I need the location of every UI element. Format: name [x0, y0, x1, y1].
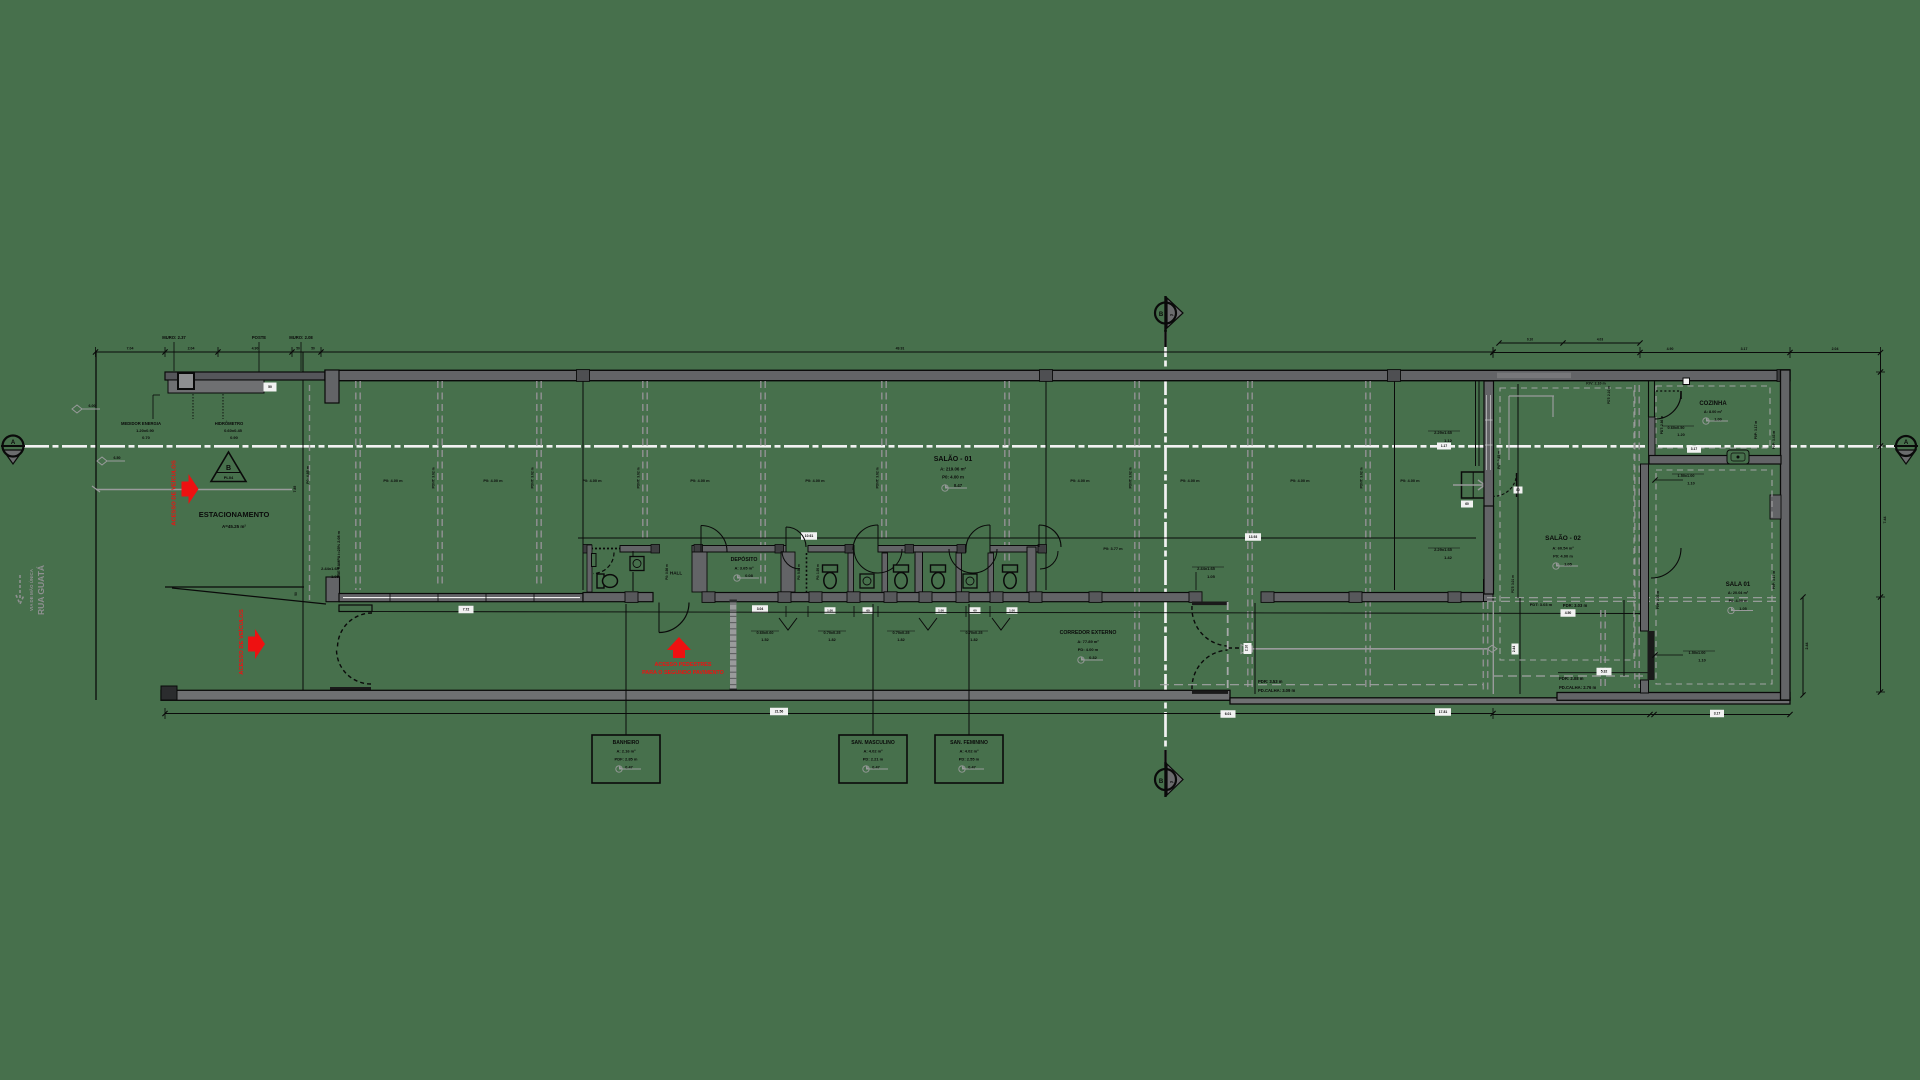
- svg-text:P0: 4.00 m: P0: 4.00 m: [942, 475, 964, 480]
- svg-text:PDR: 2.08 m: PDR: 2.08 m: [1559, 676, 1584, 681]
- svg-text:17.81: 17.81: [1439, 710, 1448, 714]
- svg-text:6.00: 6.00: [89, 404, 96, 408]
- svg-text:0.10: 0.10: [1527, 338, 1533, 342]
- svg-text:1.82: 1.82: [970, 638, 977, 642]
- svg-text:PDT: 3.01 m: PDT: 3.01 m: [1511, 575, 1515, 593]
- svg-text:13.93: 13.93: [1249, 535, 1258, 539]
- svg-text:50: 50: [268, 385, 272, 389]
- svg-text:1.52: 1.52: [761, 638, 768, 642]
- svg-text:6.01: 6.01: [1225, 712, 1232, 716]
- svg-text:1.50x1.00: 1.50x1.00: [1689, 651, 1706, 655]
- svg-text:2.44: 2.44: [1512, 646, 1516, 652]
- svg-text:PARA O SEGUNDO PAVIMENTO: PARA O SEGUNDO PAVIMENTO: [642, 670, 724, 676]
- svg-text:P0P: 3.17 m: P0P: 3.17 m: [1772, 571, 1776, 590]
- svg-text:0.70x0.25: 0.70x0.25: [893, 631, 910, 635]
- svg-text:0.32: 0.32: [1089, 655, 1098, 660]
- svg-text:0.70: 0.70: [142, 435, 151, 440]
- svg-text:B: B: [226, 465, 231, 472]
- svg-text:0.60x0.45: 0.60x0.45: [224, 428, 243, 433]
- svg-text:50: 50: [311, 347, 315, 351]
- svg-text:1.05: 1.05: [1207, 574, 1216, 579]
- svg-text:7.85: 7.85: [293, 486, 297, 493]
- svg-text:7.72: 7.72: [463, 608, 470, 612]
- svg-text:0.60x0.60: 0.60x0.60: [757, 631, 774, 635]
- svg-text:SAN. FEMININO: SAN. FEMININO: [950, 740, 988, 746]
- svg-text:SALÃO - 02: SALÃO - 02: [1545, 533, 1581, 542]
- svg-text:B: B: [1159, 312, 1164, 318]
- svg-text:PL: PL: [1170, 780, 1174, 784]
- svg-text:HALL: HALL: [670, 571, 682, 576]
- svg-text:P0: 4.00 m: P0: 4.00 m: [1290, 478, 1310, 483]
- svg-text:3.17: 3.17: [1714, 712, 1721, 716]
- svg-text:A: 4.02 m²: A: 4.02 m²: [959, 749, 979, 754]
- svg-text:SAN. MASCULINO: SAN. MASCULINO: [851, 740, 895, 746]
- svg-text:PONT: 3.62 m: PONT: 3.62 m: [876, 467, 880, 488]
- svg-text:P.IV: 2.10 m: P.IV: 2.10 m: [1586, 382, 1606, 386]
- svg-text:PD.CALHA: 2.76 m: PD.CALHA: 2.76 m: [1559, 685, 1597, 690]
- svg-text:P0: 1.95 m: P0: 1.95 m: [816, 564, 820, 580]
- svg-text:P0: 4.00 m: P0: 4.00 m: [1729, 599, 1748, 603]
- svg-text:1.20: 1.20: [1677, 433, 1684, 437]
- svg-text:60: 60: [973, 609, 977, 613]
- svg-text:49.91: 49.91: [896, 347, 905, 351]
- svg-text:60: 60: [1465, 502, 1469, 506]
- svg-text:CORREDOR EXTERNO: CORREDOR EXTERNO: [1060, 630, 1117, 636]
- svg-text:2.10: 2.10: [1245, 645, 1249, 651]
- svg-text:P0: 0.98 m: P0: 0.98 m: [665, 564, 669, 580]
- svg-text:RUA GUATÁ: RUA GUATÁ: [36, 565, 46, 615]
- svg-text:A: 77.89 m²: A: 77.89 m²: [1077, 639, 1099, 644]
- svg-text:0.70x0.25: 0.70x0.25: [966, 631, 983, 635]
- svg-text:1.42: 1.42: [1444, 555, 1453, 560]
- svg-text:3.17: 3.17: [1741, 347, 1748, 351]
- svg-text:3.04: 3.04: [757, 607, 764, 611]
- svg-text:2.04: 2.04: [1832, 347, 1839, 351]
- svg-text:SALA 01: SALA 01: [1726, 582, 1751, 588]
- svg-text:DEPÓSITO: DEPÓSITO: [731, 555, 758, 563]
- svg-text:A: 3.65 m²: A: 3.65 m²: [734, 566, 754, 571]
- svg-text:PL04: PL04: [224, 475, 234, 480]
- svg-text:PD: 2.55 m: PD: 2.55 m: [959, 757, 980, 762]
- svg-text:POSTE: POSTE: [252, 335, 266, 340]
- svg-text:PDR: 3.03 m: PDR: 3.03 m: [1563, 603, 1588, 608]
- svg-text:4.50: 4.50: [1565, 611, 1572, 615]
- svg-text:A: 8.00 m²: A: 8.00 m²: [1704, 410, 1723, 414]
- svg-text:P0: 4.00 m: P0: 4.00 m: [1180, 478, 1200, 483]
- svg-text:SALÃO - 01: SALÃO - 01: [934, 454, 973, 463]
- svg-text:1.50x1.00: 1.50x1.00: [1678, 474, 1695, 478]
- svg-text:PD: 2.21 m: PD: 2.21 m: [863, 757, 884, 762]
- svg-text:P0: 4.00 m: P0: 4.00 m: [690, 478, 710, 483]
- svg-text:1.82: 1.82: [897, 638, 904, 642]
- svg-text:MEDIDOR ENERGIA: MEDIDOR ENERGIA: [121, 421, 161, 426]
- svg-text:PONT: 3.62 m: PONT: 3.62 m: [432, 467, 436, 488]
- svg-text:PD.CALHA: 3.09 m: PD.CALHA: 3.09 m: [1258, 688, 1296, 693]
- svg-text:6.50: 6.50: [114, 456, 121, 460]
- svg-text:7.44: 7.44: [1883, 517, 1887, 524]
- svg-text:A: 20.04 m²: A: 20.04 m²: [1728, 591, 1749, 595]
- svg-text:PDT: 2.86 m: PDT: 2.86 m: [1660, 416, 1664, 435]
- svg-text:4.03: 4.03: [1597, 338, 1603, 342]
- svg-text:1.17: 1.17: [1441, 444, 1447, 448]
- svg-text:50: 50: [296, 347, 300, 351]
- svg-text:ESTACIONAMENTO: ESTACIONAMENTO: [199, 510, 270, 519]
- svg-text:PDF: 2.85 m: PDF: 2.85 m: [615, 757, 638, 762]
- svg-text:MURO: 2.08: MURO: 2.08: [289, 335, 313, 340]
- svg-text:A: A: [11, 440, 16, 446]
- svg-text:10.61: 10.61: [805, 534, 814, 538]
- svg-text:P0P: 2.03 m: P0P: 2.03 m: [1656, 591, 1660, 610]
- svg-text:2.44: 2.44: [1805, 643, 1809, 650]
- svg-text:A: 4.02 m²: A: 4.02 m²: [863, 749, 883, 754]
- svg-text:5.32: 5.32: [1601, 670, 1608, 674]
- svg-text:50: 50: [294, 592, 298, 596]
- svg-text:1.05: 1.05: [331, 574, 340, 579]
- svg-text:P0P: 3.43 m: P0P: 3.43 m: [1772, 431, 1776, 450]
- svg-text:2.44x1.65: 2.44x1.65: [321, 566, 340, 571]
- svg-text:3.17: 3.17: [1691, 447, 1698, 451]
- svg-text:ACESSO PEDESTRES: ACESSO PEDESTRES: [655, 662, 712, 668]
- svg-text:A: 60.54 m²: A: 60.54 m²: [1552, 546, 1574, 551]
- svg-text:PDT: 2.10 m: PDT: 2.10 m: [1607, 386, 1611, 404]
- svg-text:PONT: 3.62 m: PONT: 3.62 m: [1360, 467, 1364, 488]
- svg-text:BANHEIRO: BANHEIRO: [613, 740, 640, 746]
- svg-text:P0: 4.00 m: P0: 4.00 m: [1400, 478, 1420, 483]
- svg-text:PONT: 3.62 m: PONT: 3.62 m: [637, 467, 641, 488]
- svg-text:P0: 4.00 m: P0: 4.00 m: [483, 478, 503, 483]
- svg-text:0.08: 0.08: [745, 573, 754, 578]
- svg-text:1.12: 1.12: [1444, 438, 1453, 443]
- svg-text:P0: 3.77 m: P0: 3.77 m: [1103, 546, 1123, 551]
- svg-text:A: 2.16 m²: A: 2.16 m²: [616, 749, 636, 754]
- svg-text:ACESSO DE VEÍCULOS: ACESSO DE VEÍCULOS: [170, 460, 178, 526]
- svg-text:1.10: 1.10: [1698, 659, 1705, 663]
- svg-text:PL: PL: [1170, 313, 1174, 317]
- svg-text:0.47: 0.47: [954, 483, 963, 488]
- svg-text:P0: 4.00 m: P0: 4.00 m: [1070, 478, 1090, 483]
- svg-text:B: B: [1159, 779, 1164, 785]
- svg-text:4.90: 4.90: [1667, 347, 1674, 351]
- svg-text:P0: 4.00 m: P0: 4.00 m: [582, 478, 602, 483]
- svg-text:HIDRÔMETRO: HIDRÔMETRO: [215, 421, 244, 426]
- svg-text:1.82: 1.82: [828, 638, 835, 642]
- svg-text:0.70x0.25: 0.70x0.25: [824, 631, 841, 635]
- svg-text:P0: 4.00 m: P0: 4.00 m: [383, 478, 403, 483]
- svg-text:1.20x0.90: 1.20x0.90: [136, 428, 155, 433]
- svg-text:1.00: 1.00: [1009, 609, 1015, 613]
- svg-text:P0: 4.00 m: P0: 4.00 m: [1553, 554, 1573, 559]
- svg-text:ACESSO DE VEÍCULOS: ACESSO DE VEÍCULOS: [237, 609, 245, 675]
- svg-text:4.90: 4.90: [252, 347, 259, 351]
- svg-text:P0P: 3.17 m: P0P: 3.17 m: [1754, 421, 1758, 440]
- svg-text:PONT: 3.62 m: PONT: 3.62 m: [1129, 467, 1133, 488]
- svg-text:A: A: [1904, 440, 1909, 446]
- svg-text:VIA DE MÃO ÚNICA: VIA DE MÃO ÚNICA: [28, 568, 34, 611]
- svg-text:P0: 4.00 m: P0: 4.00 m: [805, 478, 825, 483]
- svg-text:1.10: 1.10: [1687, 482, 1694, 486]
- svg-text:COZINHA: COZINHA: [1699, 401, 1727, 407]
- svg-text:PONT: 3.62 m: PONT: 3.62 m: [531, 467, 535, 488]
- svg-text:P0: 5.95 m: P0: 5.95 m: [797, 564, 801, 580]
- svg-text:PDR: 3.53 m: PDR: 3.53 m: [1258, 679, 1283, 684]
- svg-text:7.04: 7.04: [127, 347, 134, 351]
- svg-text:A=45.25 m²: A=45.25 m²: [222, 524, 246, 529]
- svg-text:2.04: 2.04: [188, 347, 195, 351]
- svg-text:0.90: 0.90: [230, 435, 239, 440]
- svg-text:PDT: 3.03 m: PDT: 3.03 m: [1530, 602, 1553, 607]
- svg-text:PD: 4.00 m: PD: 4.00 m: [1078, 647, 1099, 652]
- svg-text:0.60x0.50: 0.60x0.50: [1668, 426, 1685, 430]
- svg-text:A: 219.06 m²: A: 219.06 m²: [940, 467, 966, 472]
- svg-text:MURO: 2.37: MURO: 2.37: [162, 335, 186, 340]
- svg-text:21.56: 21.56: [775, 710, 784, 714]
